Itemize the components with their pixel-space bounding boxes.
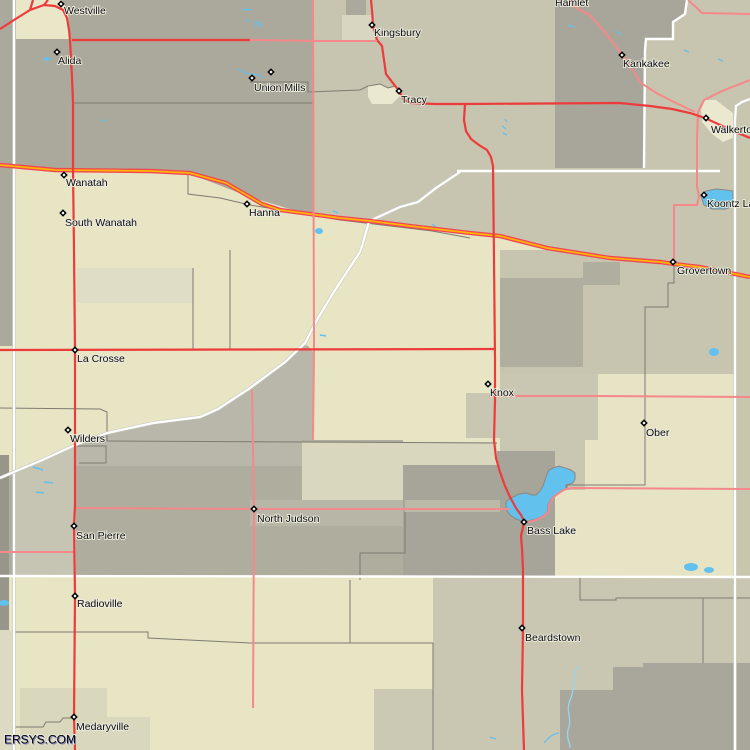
svg-text:La Crosse: La Crosse [77, 353, 125, 365]
svg-text:Tracy: Tracy [401, 94, 428, 106]
svg-text:Radioville: Radioville [77, 598, 123, 610]
svg-text:Hamlet: Hamlet [555, 0, 588, 9]
svg-text:Knox: Knox [490, 387, 515, 399]
svg-text:Kingsbury: Kingsbury [374, 27, 421, 39]
svg-text:Hanna: Hanna [249, 207, 280, 219]
svg-text:Koontz Lake: Koontz Lake [707, 198, 750, 210]
svg-text:Wanatah: Wanatah [66, 177, 108, 189]
svg-text:Ober: Ober [646, 427, 670, 439]
svg-text:Union Mills: Union Mills [254, 82, 305, 94]
svg-text:Grovertown: Grovertown [677, 265, 731, 277]
svg-text:San Pierre: San Pierre [76, 530, 126, 542]
svg-text:Medaryville: Medaryville [76, 721, 129, 733]
svg-text:Walkerton: Walkerton [711, 124, 750, 136]
svg-text:Kankakee: Kankakee [623, 58, 670, 70]
svg-text:Bass Lake: Bass Lake [527, 525, 576, 537]
svg-text:Westville: Westville [64, 5, 106, 17]
svg-text:Beardstown: Beardstown [525, 632, 581, 644]
svg-text:South Wanatah: South Wanatah [65, 217, 137, 229]
svg-text:Alida: Alida [58, 55, 82, 67]
svg-text:Wilders: Wilders [70, 433, 105, 445]
svg-text:ERSYS.COM: ERSYS.COM [4, 733, 76, 747]
svg-text:North Judson: North Judson [257, 513, 320, 525]
